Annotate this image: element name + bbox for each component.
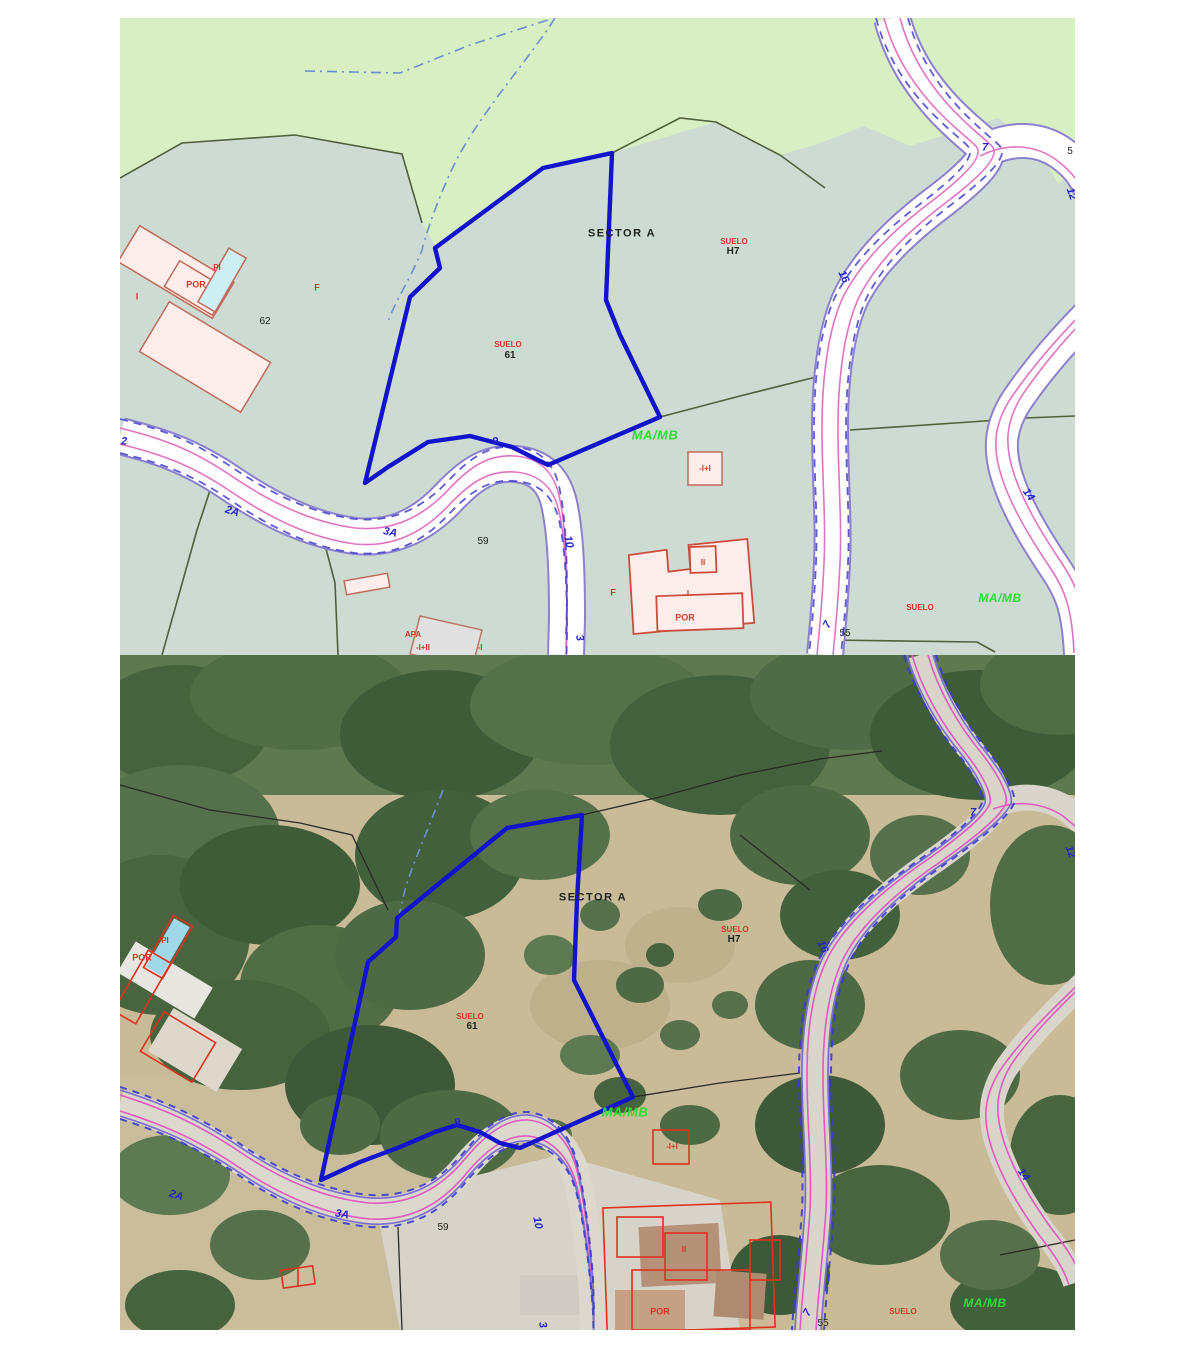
satellite-map-panel[interactable]: SECTOR A SUELO H7 SUELO 61 MA/MB -I+I 59…	[120, 655, 1075, 1330]
cadastral-map-panel[interactable]: SECTOR A SUELO H7 SUELO 61 62 F I POR PI…	[120, 18, 1075, 655]
cadastral-map-drawing	[120, 18, 1075, 655]
two-panel-map-document: SECTOR A SUELO H7 SUELO 61 62 F I POR PI…	[0, 0, 1200, 1345]
satellite-map-drawing	[120, 655, 1075, 1330]
